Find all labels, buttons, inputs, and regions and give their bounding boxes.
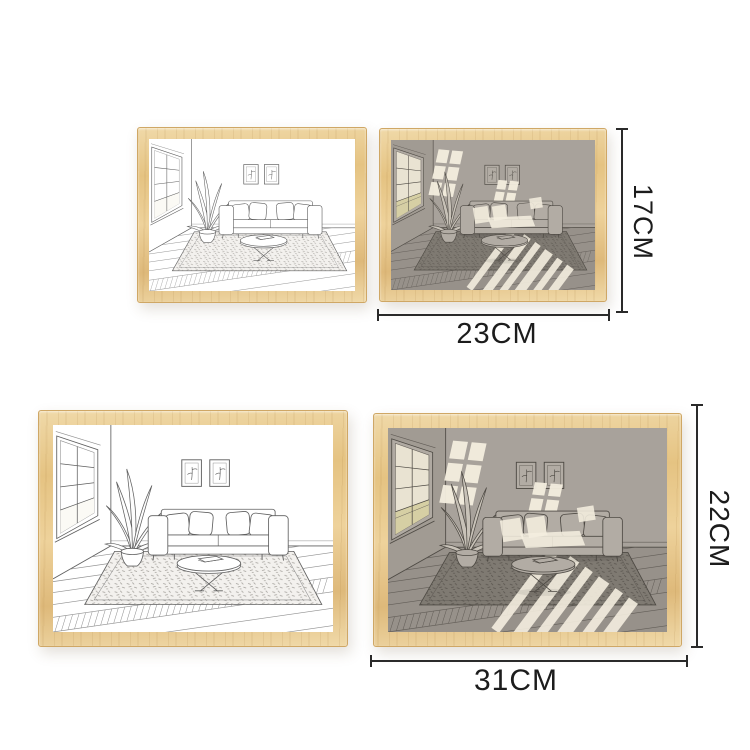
measure-line-large-height [696, 404, 698, 648]
small-height-label: 17CM [627, 184, 658, 260]
frame-large-backlit [373, 413, 682, 647]
measure-line-small-width [377, 314, 610, 316]
small-width-label: 23CM [456, 318, 537, 351]
measure-line-large-width [370, 660, 688, 662]
artwork-large-line-drawing [53, 425, 333, 632]
large-width-label: 31CM [474, 664, 558, 698]
frame-large-line-art [38, 410, 348, 647]
artwork-large-backlit-drawing [388, 428, 667, 632]
frame-small-backlit [379, 128, 607, 302]
artwork-small-backlit-drawing [391, 140, 595, 290]
frame-small-line-art [137, 127, 367, 303]
artwork-small-line-drawing [149, 139, 355, 291]
product-size-comparison: 17CM 23CM 22CM 31CM [0, 0, 750, 750]
measure-line-small-height [621, 128, 623, 313]
large-height-label: 22CM [703, 490, 735, 569]
